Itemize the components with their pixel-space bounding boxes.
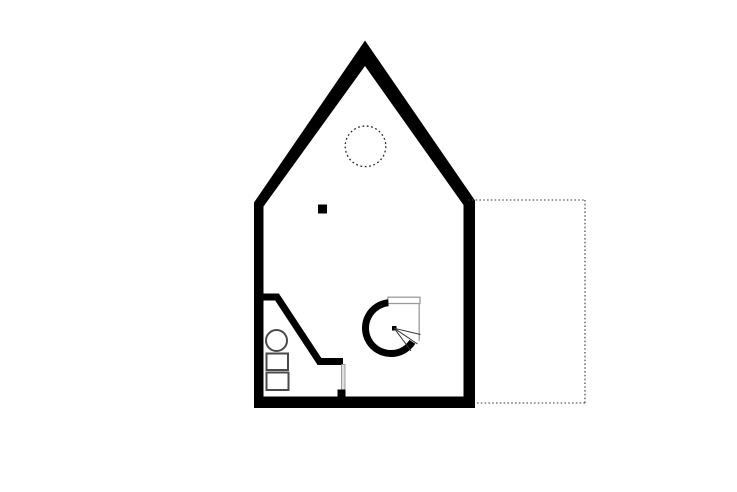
floor-plan-canvas	[0, 0, 737, 492]
bathroom-fixture-2	[267, 373, 289, 391]
stair-landing	[388, 297, 420, 303]
bathroom-door-leaf	[342, 365, 346, 391]
sink-circle	[266, 330, 287, 351]
column	[318, 205, 327, 214]
bathroom-door-jamb	[338, 390, 346, 398]
plan-background	[0, 0, 737, 492]
bathroom-fixture-1	[267, 354, 289, 371]
floor-plan-svg	[0, 0, 737, 492]
